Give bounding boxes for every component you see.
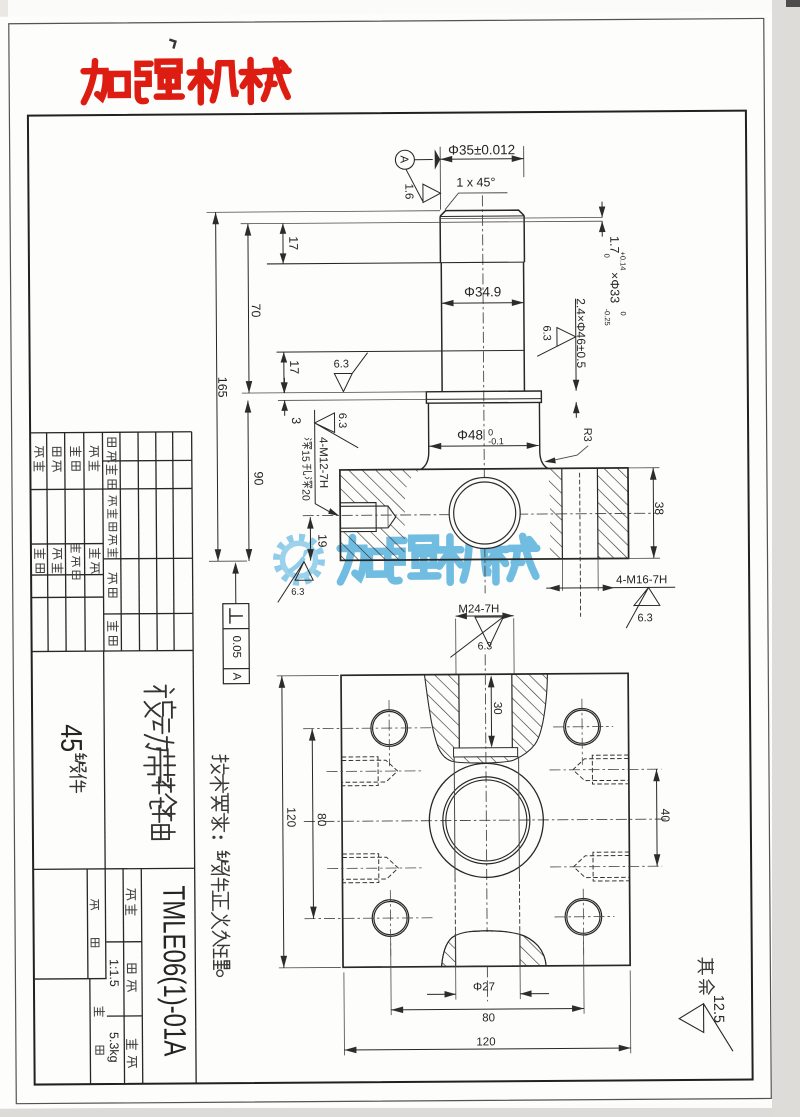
svg-text:1 x 45°: 1 x 45° <box>456 175 495 189</box>
svg-text:Φ27: Φ27 <box>473 981 495 993</box>
svg-text:30: 30 <box>491 702 503 715</box>
svg-text:A: A <box>397 155 409 163</box>
svg-text:70: 70 <box>249 303 263 317</box>
svg-text:90: 90 <box>251 471 265 485</box>
svg-text:3: 3 <box>289 417 303 424</box>
svg-text:1.6: 1.6 <box>402 183 414 199</box>
svg-text:-0.1: -0.1 <box>488 436 504 446</box>
svg-text:6.3: 6.3 <box>540 325 552 340</box>
svg-text:5.3kg: 5.3kg <box>107 1032 121 1063</box>
svg-text:Φ35±0.012: Φ35±0.012 <box>448 142 515 157</box>
svg-text:2.4×Φ46±0.5: 2.4×Φ46±0.5 <box>574 298 588 368</box>
svg-text:165: 165 <box>215 377 229 398</box>
svg-text:6.3: 6.3 <box>637 612 652 624</box>
svg-text:19: 19 <box>315 534 329 548</box>
svg-text:38: 38 <box>652 502 666 516</box>
svg-text:Φ34.9: Φ34.9 <box>464 284 501 299</box>
svg-text:-0.25: -0.25 <box>603 309 612 326</box>
svg-text:6.3: 6.3 <box>478 640 493 652</box>
svg-text:6.3: 6.3 <box>291 587 304 598</box>
svg-text:20: 20 <box>300 489 312 501</box>
svg-text:15: 15 <box>299 450 311 462</box>
svg-text:17: 17 <box>286 236 300 250</box>
svg-text:1:1.5: 1:1.5 <box>107 959 121 987</box>
svg-text:A: A <box>230 673 242 681</box>
svg-text:6.3: 6.3 <box>334 358 349 370</box>
svg-text:80: 80 <box>482 1012 495 1024</box>
svg-text:120: 120 <box>476 1036 495 1048</box>
svg-text:0: 0 <box>619 311 628 315</box>
svg-text:0: 0 <box>602 254 611 258</box>
svg-text:80: 80 <box>315 813 329 827</box>
svg-text:45: 45 <box>54 724 88 752</box>
svg-text:4-M12-7H: 4-M12-7H <box>317 437 329 488</box>
svg-text:R3: R3 <box>581 428 593 442</box>
svg-text:TMLE06(1)-01A: TMLE06(1)-01A <box>155 885 191 1056</box>
svg-text:17: 17 <box>287 360 301 374</box>
svg-text:120: 120 <box>284 807 298 827</box>
svg-text:Φ48: Φ48 <box>457 427 483 442</box>
svg-text:4-M16-7H: 4-M16-7H <box>616 574 667 586</box>
svg-text:×Φ33: ×Φ33 <box>608 272 622 303</box>
svg-text:6.3: 6.3 <box>336 413 348 428</box>
svg-text:+0.14: +0.14 <box>618 251 627 270</box>
svg-text:40: 40 <box>658 809 672 823</box>
svg-text:0.05: 0.05 <box>230 636 242 658</box>
